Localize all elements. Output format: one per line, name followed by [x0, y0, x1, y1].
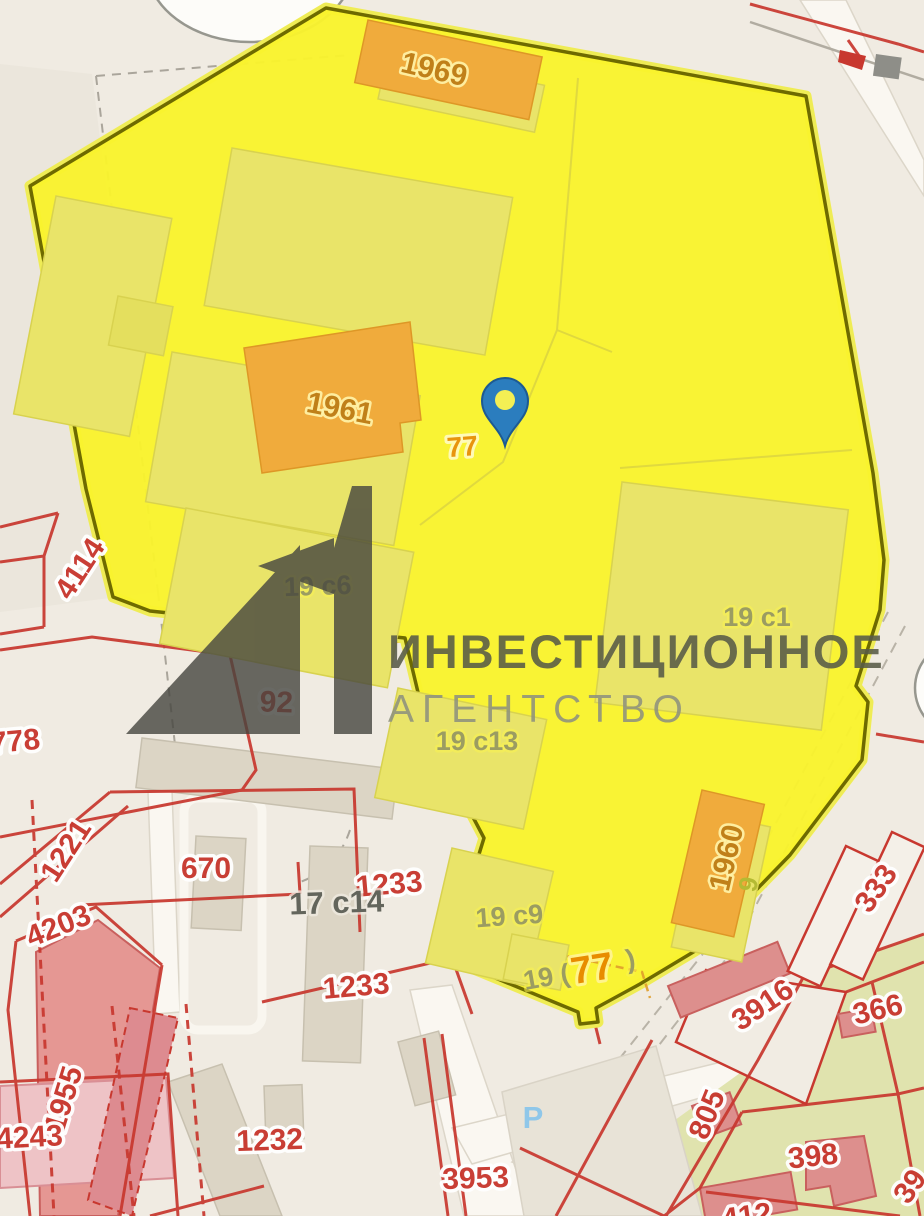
cadastral-number: 1232 — [236, 1123, 304, 1158]
small-gray-structure — [873, 54, 902, 79]
watermark-text-line2: АГЕНТСТВО — [388, 688, 691, 731]
address-label-77-south: 77 — [568, 945, 616, 993]
cadastral-number: 778 — [0, 723, 42, 760]
cadastral-number: 3953 — [442, 1161, 510, 1196]
address-label-77: 77 — [446, 430, 479, 463]
building-number-gray: 17 с14 — [289, 883, 386, 921]
cadastral-number: 670 — [181, 852, 231, 885]
parking-icon: P — [523, 1100, 544, 1135]
watermark-text-line1: ИНВЕСТИЦИОННОЕ — [388, 625, 885, 678]
map-canvas[interactable]: 19 с6 19 с1 19 с13 19 с9 19 ( ) 9 1969 1… — [0, 0, 924, 1216]
cadastral-number: 398 — [786, 1138, 839, 1176]
cadastral-number: 1233 — [321, 967, 390, 1006]
structure-label: 19 с9 — [475, 899, 545, 934]
cadastral-number: 4243 — [0, 1119, 64, 1155]
